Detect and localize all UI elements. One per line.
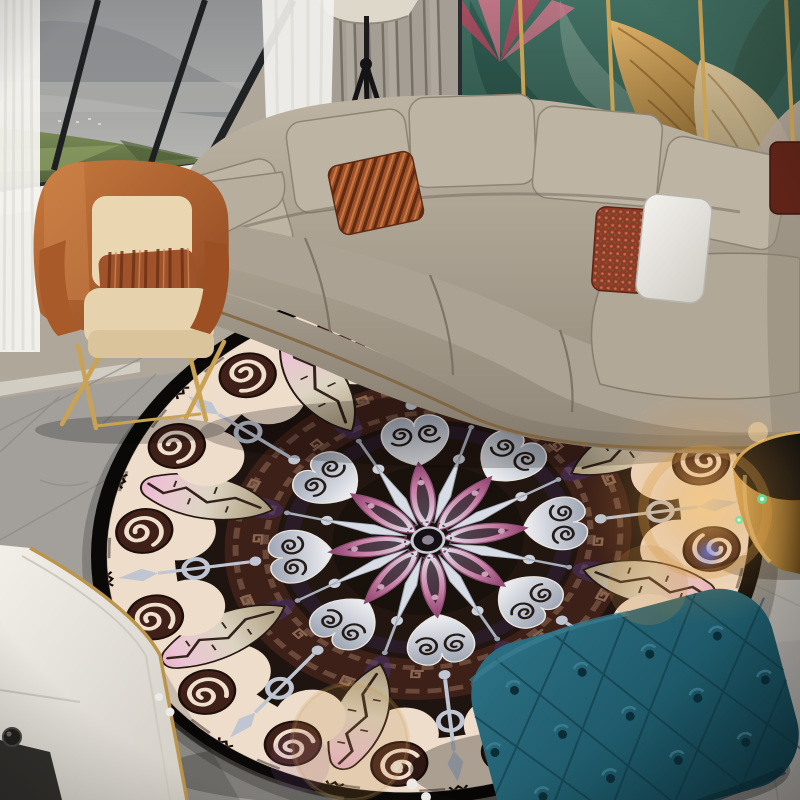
vignette	[0, 0, 800, 800]
product-photo: Round bohemian mandala area rug in dark …	[0, 0, 800, 800]
living-room-scene	[0, 0, 800, 800]
